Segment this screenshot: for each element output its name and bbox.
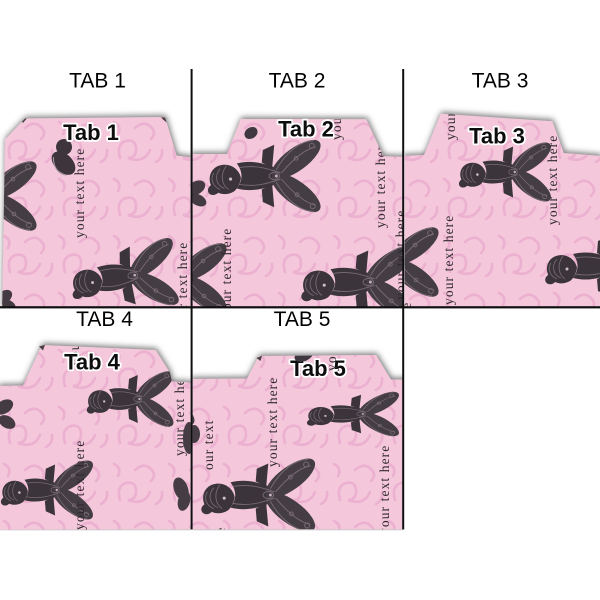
- svg-text:your text here: your text here: [545, 135, 560, 225]
- svg-text:your text here: your text here: [72, 440, 87, 530]
- svg-text:your text here: your text here: [219, 228, 234, 318]
- svg-text:your text here: your text here: [441, 215, 456, 305]
- svg-text:Tab 4: Tab 4: [64, 350, 121, 375]
- svg-text:your text here: your text here: [377, 445, 392, 535]
- svg-text:our text: our text: [201, 420, 216, 470]
- svg-text:Tab 1: Tab 1: [63, 120, 119, 145]
- svg-text:TAB 5: TAB 5: [274, 308, 331, 331]
- svg-text:TAB 3: TAB 3: [472, 70, 529, 93]
- svg-text:TAB 4: TAB 4: [76, 308, 133, 331]
- svg-text:TAB 2: TAB 2: [269, 70, 326, 93]
- svg-text:Tab 2: Tab 2: [278, 117, 334, 142]
- svg-text:your text here: your text here: [265, 377, 280, 467]
- svg-text:Tab 3: Tab 3: [469, 124, 525, 149]
- svg-text:your text here: your text here: [72, 148, 87, 238]
- svg-text:TAB 1: TAB 1: [69, 70, 126, 93]
